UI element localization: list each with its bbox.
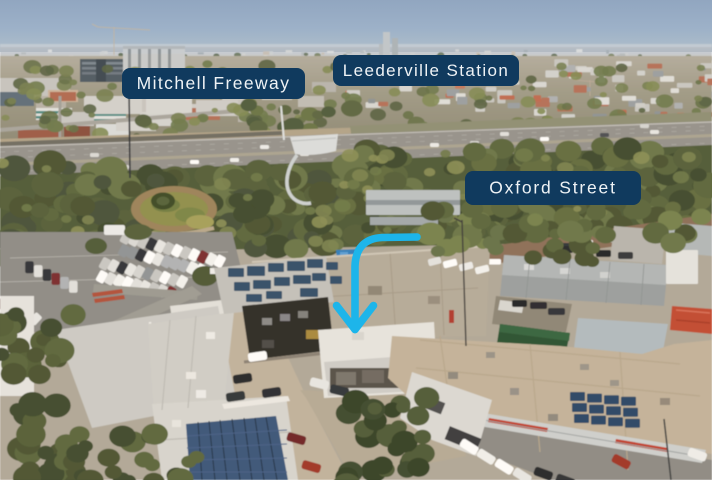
svg-text:Leederville Station: Leederville Station	[343, 61, 509, 80]
svg-text:Mitchell Freeway: Mitchell Freeway	[137, 73, 291, 93]
svg-text:Oxford Street: Oxford Street	[489, 178, 616, 198]
